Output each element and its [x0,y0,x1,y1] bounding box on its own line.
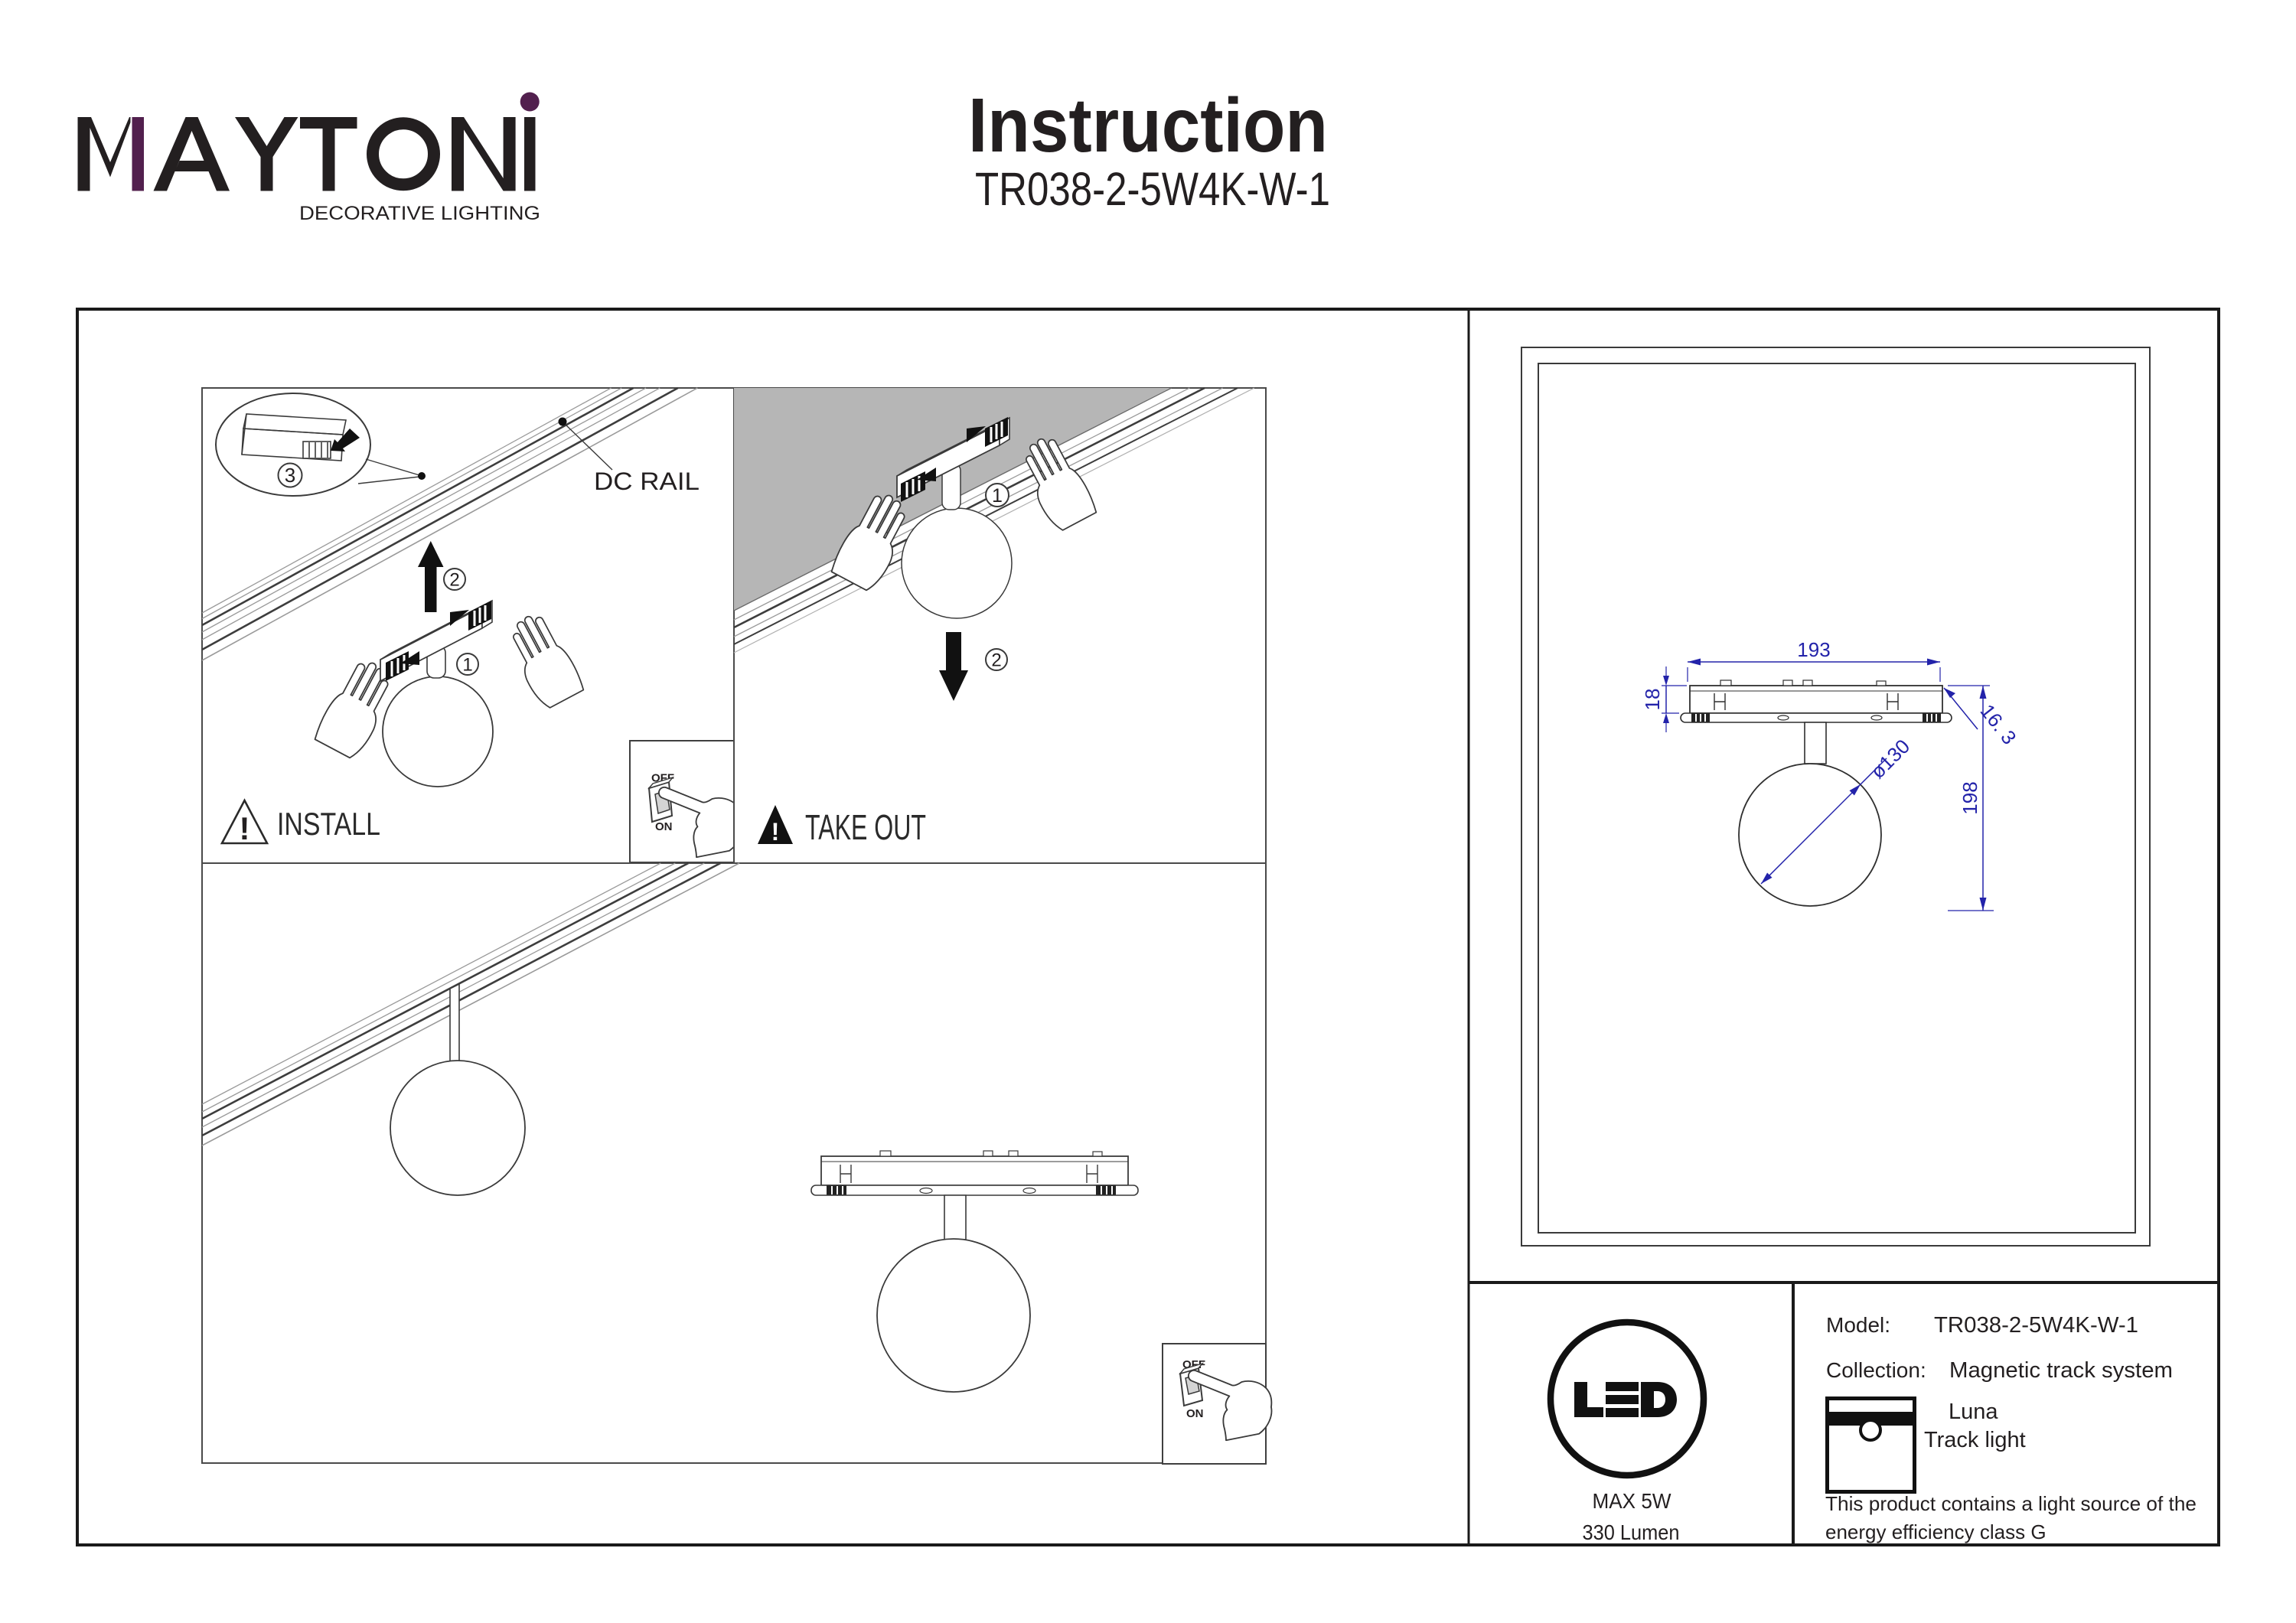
svg-text:3: 3 [285,464,295,487]
svg-text:Track light: Track light [1924,1428,2026,1452]
svg-text:Model:: Model: [1826,1313,1890,1337]
svg-text:ON: ON [1186,1407,1204,1420]
svg-text:!: ! [771,818,780,846]
svg-text:TR038-2-5W4K-W-1: TR038-2-5W4K-W-1 [1934,1313,2138,1338]
svg-text:TAKE OUT: TAKE OUT [805,807,926,847]
svg-text:1: 1 [992,485,1003,507]
svg-text:1: 1 [462,655,472,676]
svg-text:TR038-2-5W4K-W-1: TR038-2-5W4K-W-1 [975,163,1330,215]
svg-text:!: ! [240,810,250,846]
svg-text:2: 2 [991,650,1001,671]
svg-text:DECORATIVE LIGHTING: DECORATIVE LIGHTING [299,203,540,224]
svg-text:MAX 5W: MAX 5W [1593,1489,1672,1513]
svg-text:Luna: Luna [1949,1400,1998,1424]
svg-text:330 Lumen: 330 Lumen [1583,1520,1680,1544]
svg-text:2: 2 [449,570,459,591]
svg-text:energy efficiency class G: energy efficiency class G [1825,1520,2047,1543]
svg-text:INSTALL: INSTALL [277,806,380,842]
svg-text:DC RAIL: DC RAIL [594,468,700,495]
svg-text:Collection:: Collection: [1826,1358,1926,1382]
svg-text:ON: ON [655,820,673,833]
svg-text:18: 18 [1641,689,1664,711]
svg-text:193: 193 [1797,638,1830,661]
svg-text:198: 198 [1958,781,1981,814]
svg-text:Instruction: Instruction [968,83,1328,168]
svg-text:Magnetic track system: Magnetic track system [1949,1358,2173,1383]
svg-text:This product contains a light: This product contains a light source of … [1825,1492,2197,1515]
